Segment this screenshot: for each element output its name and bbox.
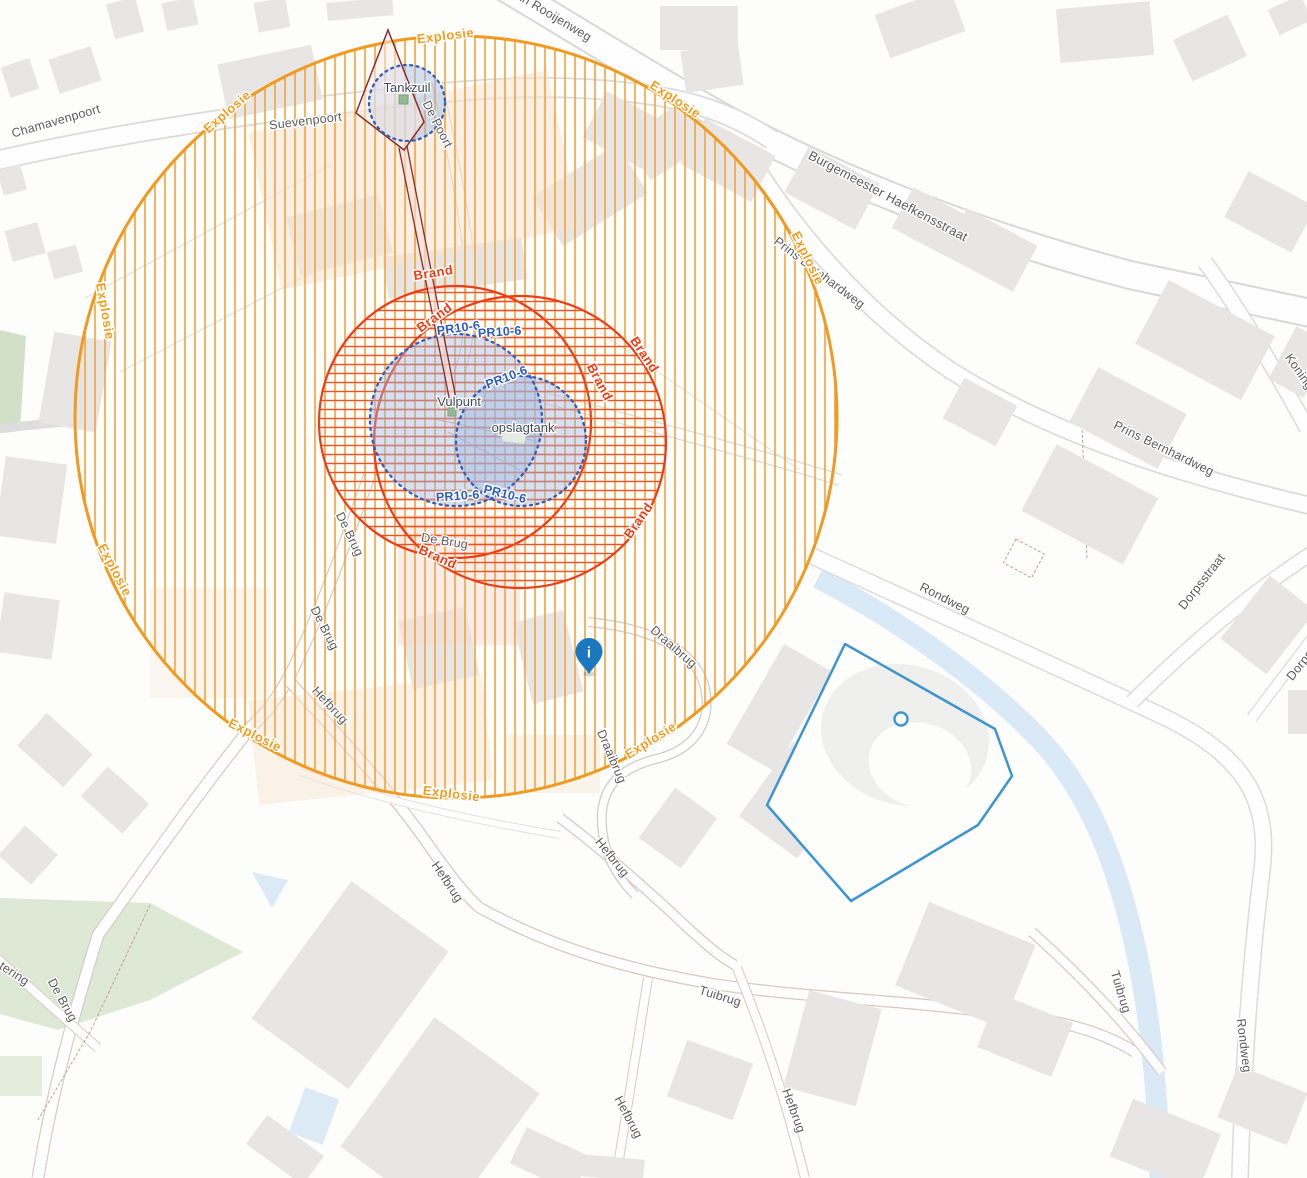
building bbox=[0, 456, 67, 544]
building bbox=[660, 6, 738, 50]
building bbox=[680, 43, 743, 93]
site-label-vulpunt: Vulpunt bbox=[437, 394, 481, 409]
building bbox=[254, 0, 291, 33]
site-label-opslagtank: opslagtank bbox=[492, 420, 555, 435]
map-canvas[interactable]: Chamavenpoort Suevenpoort van Rooijenweg… bbox=[0, 0, 1307, 1178]
site-label-tankzuil: Tankzuil bbox=[384, 80, 431, 95]
building bbox=[1288, 690, 1307, 734]
building bbox=[0, 592, 60, 659]
building bbox=[1056, 1, 1154, 63]
pin-info-glyph: i bbox=[587, 645, 591, 662]
park-area bbox=[0, 1056, 42, 1096]
selection-vertex-marker[interactable] bbox=[895, 713, 908, 726]
vulpunt-marker[interactable] bbox=[448, 408, 456, 416]
tankzuil-marker[interactable] bbox=[399, 95, 408, 104]
hazard-zones-layer bbox=[75, 30, 837, 798]
